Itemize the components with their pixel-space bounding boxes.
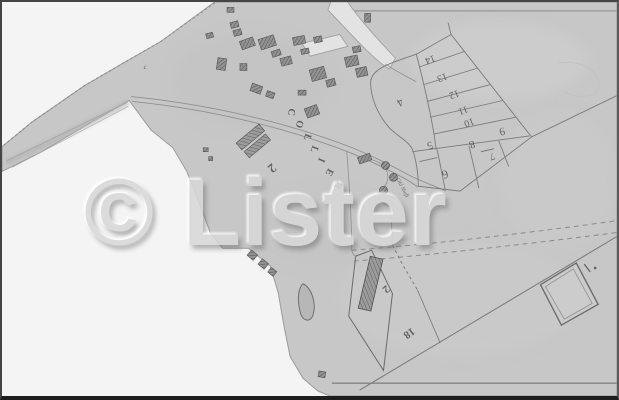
map-canvas: COLLIER14131211109875642218Old Shaftc © … bbox=[0, 0, 619, 400]
map-drawing bbox=[2, 2, 617, 396]
paper-region bbox=[2, 2, 617, 396]
